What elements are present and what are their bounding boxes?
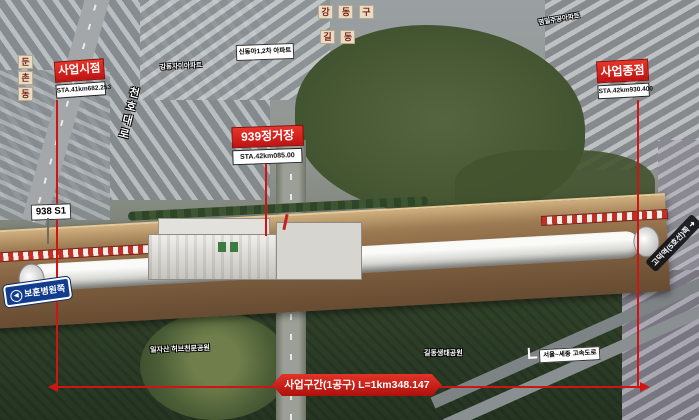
label-gangdong-gu: 강 동 구	[318, 2, 375, 20]
station-leader-line	[265, 160, 267, 236]
shaft-938-label: 938 S1	[31, 203, 72, 220]
label-char: 동	[338, 5, 353, 19]
left-arrow-icon: ◀	[10, 289, 24, 303]
project-end-title: 사업종점	[596, 59, 649, 84]
label-shindonga-apt: 신동아1,2차 아파트	[236, 43, 295, 61]
label-char: 둔	[18, 55, 33, 69]
station-939-label-group: 939정거장 STA.42km085.00	[231, 125, 304, 165]
label-char: 구	[359, 5, 374, 19]
label-iljasan-herb-park: 일자산 허브천문공원	[150, 343, 210, 355]
label-char: 동	[340, 30, 355, 44]
dimension-line-right	[440, 386, 640, 388]
section-length-banner: 사업구간(1공구) L=1km348.147	[272, 374, 442, 396]
label-gildong-eco-park: 길동생태공원	[424, 348, 463, 358]
station-secondary-structure	[276, 222, 362, 280]
station-939-render	[148, 216, 360, 290]
aerial-project-map: 사업구간(1공구) L=1km348.147 둔 촌 동 강 동 구 길 동 천…	[0, 0, 699, 420]
herb-park-render	[140, 312, 290, 420]
project-start-label-group: 사업시점 STA.41km682.253	[54, 58, 106, 98]
station-939-sta: STA.42km085.00	[232, 148, 302, 165]
dimension-line-left	[57, 386, 275, 388]
label-char: 길	[320, 30, 335, 44]
dimension-arrowhead-left	[48, 382, 58, 392]
project-end-label-group: 사업종점 STA.42km930.400	[596, 59, 650, 100]
label-dunchon-dong: 둔 촌 동	[18, 55, 33, 103]
station-939-title: 939정거장	[231, 125, 304, 148]
right-arrow-icon: ➜	[687, 219, 698, 230]
label-char: 동	[18, 87, 33, 101]
label-gil-dong: 길 동	[320, 27, 356, 45]
bohun-sign-text: 보훈병원쪽	[23, 283, 65, 299]
station-equipment	[218, 242, 226, 252]
shaft-938-pole	[47, 218, 49, 244]
construction-tape-right	[541, 209, 668, 226]
leader-bracket-icon	[528, 348, 538, 359]
end-leader-line	[637, 100, 639, 387]
label-char: 강	[318, 5, 333, 19]
project-end-sta: STA.42km930.400	[597, 83, 650, 100]
expressway-label-group: 서울~세종 고속도로	[528, 341, 601, 364]
station-equipment	[230, 242, 238, 252]
start-leader-line	[56, 100, 58, 387]
dimension-arrowhead-right	[640, 382, 650, 392]
label-char: 촌	[18, 71, 33, 85]
project-start-title: 사업시점	[54, 58, 105, 82]
